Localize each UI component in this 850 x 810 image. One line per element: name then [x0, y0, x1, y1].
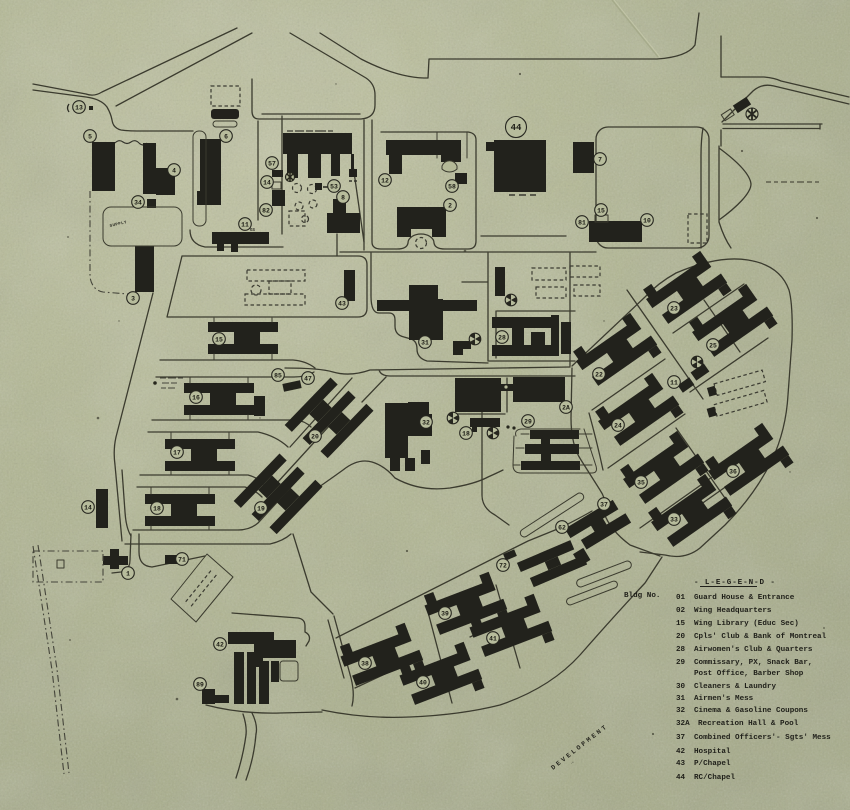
svg-text:36: 36 — [729, 468, 737, 475]
svg-text:01: 01 — [676, 594, 686, 602]
svg-text:58: 58 — [448, 183, 456, 190]
svg-text:Airwomen's Club & Quarters: Airwomen's Club & Quarters — [694, 646, 813, 654]
svg-text:43: 43 — [676, 760, 686, 768]
svg-text:57: 57 — [268, 160, 276, 167]
svg-text:28: 28 — [676, 646, 686, 654]
svg-text:11: 11 — [670, 379, 678, 386]
svg-text:Wing Headquarters: Wing Headquarters — [694, 607, 772, 615]
svg-text:5: 5 — [88, 133, 92, 140]
svg-text:44: 44 — [511, 123, 522, 133]
svg-text:32: 32 — [676, 707, 686, 715]
svg-text:42: 42 — [216, 641, 224, 648]
svg-text:Recreation Hall & Pool: Recreation Hall & Pool — [698, 720, 799, 728]
svg-text:RC/Chapel: RC/Chapel — [694, 774, 735, 782]
svg-text:15: 15 — [215, 336, 223, 343]
svg-text:81: 81 — [578, 219, 586, 226]
svg-text:Airmen's Mess: Airmen's Mess — [694, 695, 754, 703]
svg-text:12: 12 — [381, 177, 389, 184]
svg-text:38: 38 — [361, 660, 369, 667]
svg-text:7: 7 — [598, 156, 602, 163]
svg-text:85: 85 — [274, 372, 282, 379]
svg-text:47: 47 — [304, 375, 312, 382]
svg-text:31: 31 — [676, 695, 686, 703]
svg-text:Guard House & Entrance: Guard House & Entrance — [694, 594, 795, 602]
svg-text:82: 82 — [262, 207, 270, 214]
svg-text:10: 10 — [643, 217, 651, 224]
svg-text:20: 20 — [676, 633, 686, 641]
svg-text:40: 40 — [419, 679, 427, 686]
svg-text:89: 89 — [196, 681, 204, 688]
svg-text:8: 8 — [341, 194, 345, 201]
svg-text:6: 6 — [224, 133, 228, 140]
svg-text:14: 14 — [84, 504, 92, 511]
svg-text:4: 4 — [172, 167, 176, 174]
svg-text:Cleaners & Laundry: Cleaners & Laundry — [694, 683, 776, 691]
svg-text:1: 1 — [126, 570, 130, 577]
svg-text:Post Office, Barber Shop: Post Office, Barber Shop — [694, 670, 804, 678]
svg-text:24: 24 — [614, 422, 622, 429]
svg-text:42: 42 — [676, 748, 686, 756]
svg-text:25: 25 — [709, 342, 717, 349]
svg-text:32A: 32A — [676, 720, 690, 728]
svg-text:GS: GS — [250, 229, 256, 233]
svg-text:14: 14 — [263, 179, 271, 186]
svg-text:37: 37 — [676, 734, 686, 742]
svg-text:15: 15 — [676, 620, 686, 628]
svg-text:29: 29 — [676, 659, 686, 667]
svg-text:35: 35 — [637, 479, 645, 486]
svg-text:16: 16 — [192, 394, 200, 401]
svg-text:Hospital: Hospital — [694, 748, 731, 756]
svg-text:41: 41 — [489, 635, 497, 642]
svg-text:13: 13 — [75, 104, 83, 111]
svg-text:19: 19 — [257, 505, 265, 512]
svg-text:39: 39 — [441, 610, 449, 617]
svg-text:Cinema & Gasoline Coupons: Cinema & Gasoline Coupons — [694, 707, 808, 715]
svg-text:33: 33 — [670, 516, 678, 523]
svg-text:Commissary, PX, Snack Bar,: Commissary, PX, Snack Bar, — [694, 659, 812, 667]
svg-text:28: 28 — [498, 334, 506, 341]
svg-text:53: 53 — [330, 183, 338, 190]
svg-text:62: 62 — [558, 524, 566, 531]
svg-text:43: 43 — [338, 300, 346, 307]
svg-text:31: 31 — [421, 339, 429, 346]
svg-text:15: 15 — [597, 207, 605, 214]
svg-text:18: 18 — [462, 430, 470, 437]
svg-text:30: 30 — [676, 683, 686, 691]
svg-text:- L-E-G-E-N-D -: - L-E-G-E-N-D - — [694, 579, 776, 587]
svg-text:P/Chapel: P/Chapel — [694, 760, 731, 768]
svg-text:23: 23 — [670, 305, 678, 312]
svg-text:34: 34 — [134, 199, 142, 206]
svg-text:29: 29 — [524, 418, 532, 425]
svg-text:02: 02 — [676, 607, 686, 615]
svg-text:17: 17 — [173, 449, 181, 456]
svg-text:37: 37 — [600, 501, 608, 508]
svg-text:3: 3 — [131, 295, 135, 302]
svg-text:Cpls' Club & Bank of Montreal: Cpls' Club & Bank of Montreal — [694, 633, 827, 641]
svg-text:11: 11 — [241, 221, 249, 228]
svg-text:22: 22 — [595, 371, 603, 378]
svg-text:Wing Library (Educ Sec): Wing Library (Educ Sec) — [694, 620, 799, 628]
svg-text:32: 32 — [422, 419, 430, 426]
svg-text:18: 18 — [153, 505, 161, 512]
svg-text:71: 71 — [178, 556, 186, 563]
svg-text:72: 72 — [499, 562, 507, 569]
svg-text:2: 2 — [448, 202, 452, 209]
svg-text:2A: 2A — [562, 404, 570, 411]
svg-text:Bldg No.: Bldg No. — [624, 592, 660, 600]
svg-text:Combined Officers'- Sgts' Mess: Combined Officers'- Sgts' Mess — [694, 734, 831, 742]
svg-text:20: 20 — [311, 433, 319, 440]
svg-text:44: 44 — [676, 774, 686, 782]
